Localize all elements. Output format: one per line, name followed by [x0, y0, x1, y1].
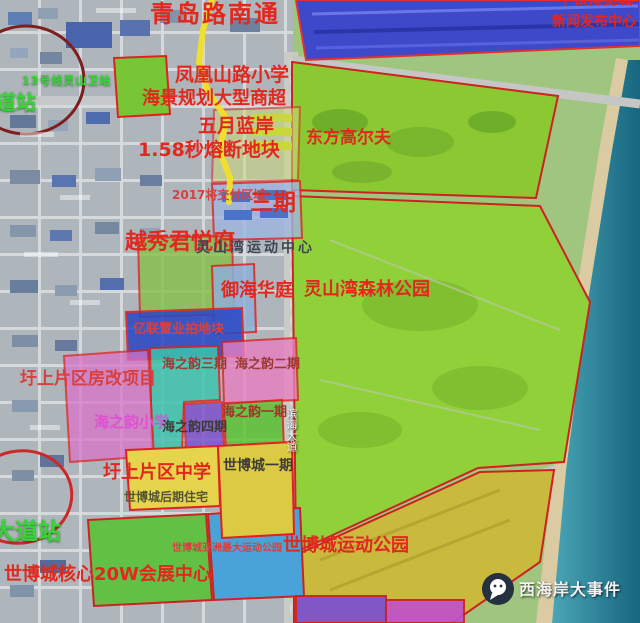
middle-school-label: 圩上片区中学 [103, 464, 211, 482]
housing-reform-label: 圩上片区房改项目 [20, 371, 156, 388]
dao-station-label: 道站 [0, 92, 36, 112]
hzy2-label: 海之韵二期 [235, 358, 300, 371]
expo1-label: 世博城一期 [223, 459, 293, 473]
line13-station-label: 13号线灵山卫站 [22, 75, 111, 86]
binhai-avenue-label: 滨海大道 [286, 408, 297, 452]
wuyue-lanan-label: 五月蓝岸 [198, 117, 274, 136]
phase3-label: 三期 [250, 192, 296, 215]
expo-core-green-parcel [88, 514, 212, 606]
asia-largest-label: 世博城亚洲最大运动公园 [172, 544, 282, 554]
road-label: 青岛路南通 [150, 2, 280, 26]
hzy3-label: 海之韵三期 [162, 358, 227, 371]
expo-later-label: 世博城后期住宅 [124, 491, 208, 503]
golf-label: 东方高尔夫 [306, 130, 391, 147]
map-canvas[interactable]: 青岛路南通 中铁博览城 新闻发布中心 凤凰山路小学 海景规划大型商超 五月蓝岸 … [0, 0, 640, 623]
bottom-magenta-parcel [386, 600, 464, 623]
speech-bubble-icon [482, 573, 514, 605]
mall-label: 海景规划大型商超 [142, 90, 286, 108]
housing-reform-parcel [64, 350, 154, 462]
rongduan-label: 1.58秒熔断地块 [138, 141, 280, 160]
auction-plot-label: 亿联置业拍地块 [133, 323, 224, 336]
map-overlay-svg [0, 0, 640, 623]
expo-phase1-parcel [218, 442, 294, 538]
hzy-school-label: 海之韵小学 [94, 415, 169, 430]
yuhai-label: 御海华庭 [221, 282, 293, 300]
primary-school-label: 凤凰山路小学 [175, 66, 289, 85]
sports-center-label: 灵山湾运动中心 [196, 241, 315, 255]
sports-park-label: 世博城运动公园 [283, 537, 409, 555]
hzy4-label: 海之韵四期 [162, 421, 227, 434]
news-center-label: 新闻发布中心 [552, 15, 636, 29]
hzy1-label: 海之韵一期 [222, 406, 287, 419]
wechat-logo [482, 573, 514, 605]
account-name-label: 西海岸大事件 [519, 582, 621, 598]
forest-park-label: 灵山湾森林公园 [304, 281, 430, 299]
bottom-purple-parcel [296, 596, 386, 623]
expo-core-label: 世博城核心20W会展中心 [4, 566, 211, 584]
dadao-station-label: 大道站 [0, 521, 61, 544]
zhongtie-expo-label: 中铁博览城 [558, 0, 633, 7]
